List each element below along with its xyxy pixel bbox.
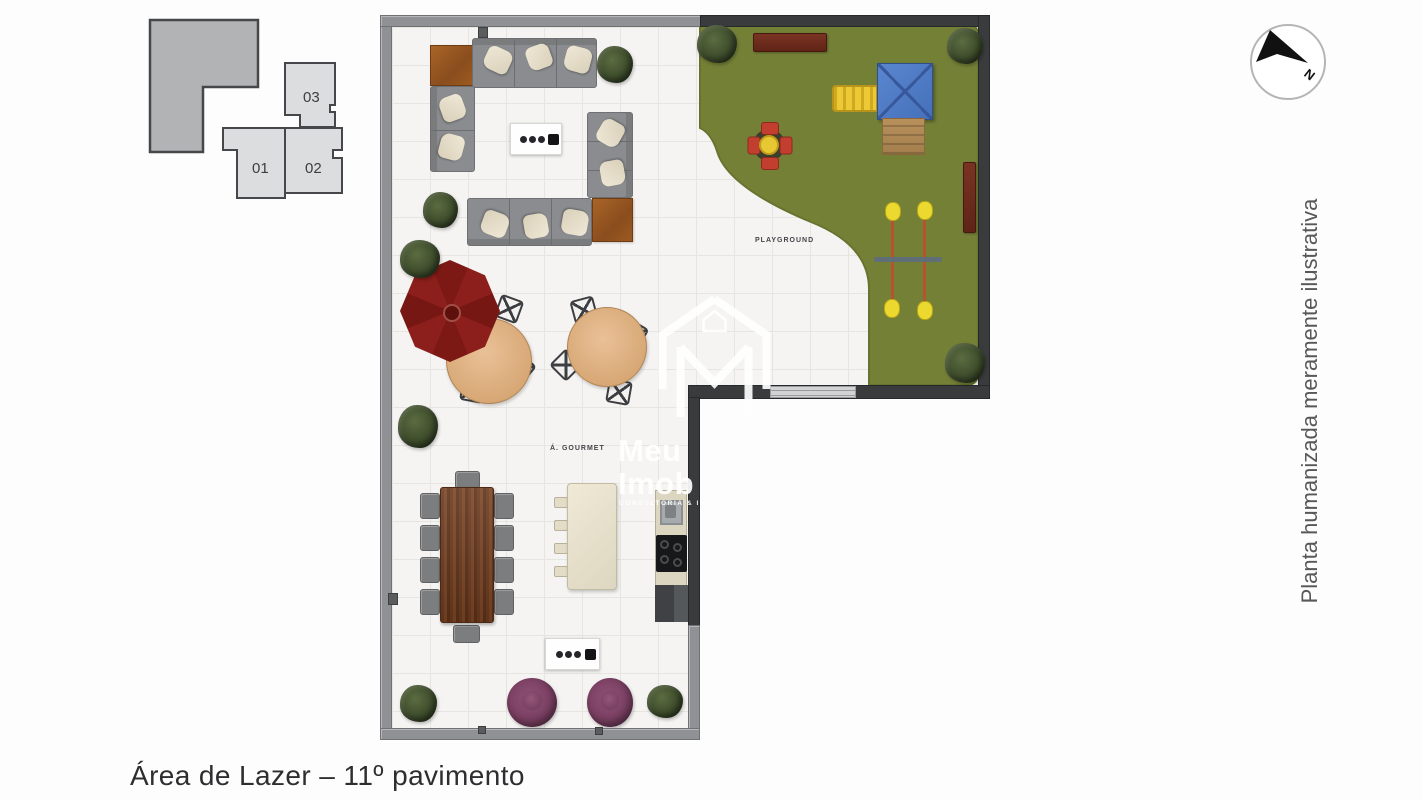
- sofa-seam: [431, 130, 474, 131]
- kitchen-sink: [660, 500, 683, 525]
- island-stool: [554, 566, 568, 577]
- swing-post: [917, 301, 933, 320]
- wall-fixture-top: [478, 27, 488, 38]
- cooktop: [656, 535, 687, 572]
- shrub-west-wall-2: [398, 405, 438, 448]
- shrub-gourmet-sw: [400, 685, 437, 722]
- dining-chair-right: [494, 557, 514, 583]
- side-table-wood-se: [592, 198, 633, 242]
- kids-picnic-table: [746, 122, 792, 168]
- wall-inner-gourmet-lower: [688, 625, 700, 740]
- wall-bottom-gourmet: [380, 728, 700, 740]
- wall-left: [380, 15, 392, 740]
- floor-plan: PLAYGROUND Á. GOURMET: [380, 15, 990, 740]
- dining-chair-left: [420, 557, 440, 583]
- round-table-2: [567, 307, 647, 387]
- shrub-lounge-w: [423, 192, 458, 228]
- dining-chair-left: [420, 493, 440, 519]
- shrub-west-wall-1: [400, 240, 440, 278]
- burner: [660, 555, 669, 564]
- sofa-right: [587, 112, 633, 198]
- island-stool: [554, 497, 568, 508]
- sofa-seam: [551, 199, 552, 245]
- swing-crossbar: [874, 257, 942, 262]
- playground-label: PLAYGROUND: [755, 237, 814, 244]
- wall-fixture-bottom-2: [595, 727, 603, 735]
- tray-box: [585, 649, 596, 660]
- key-plan: 03 01 02: [140, 15, 350, 205]
- sofa-pillow: [479, 208, 512, 239]
- sofa-seam: [514, 39, 515, 87]
- sofa-pillow: [437, 92, 468, 124]
- sofa-pillow: [524, 42, 555, 73]
- key-plan-unit-01-label: 01: [252, 160, 269, 177]
- kitchen-island: [567, 483, 617, 590]
- swing-post: [884, 299, 900, 318]
- page-title: Área de Lazer – 11º pavimento: [130, 760, 525, 792]
- swing-post: [885, 202, 901, 221]
- playground-bench-right: [963, 162, 976, 233]
- kids-table-seat: [761, 157, 779, 170]
- tree-playground-nw: [697, 25, 737, 63]
- wall-inner-gourmet: [688, 397, 700, 627]
- dining-chair-left: [420, 525, 440, 551]
- sofa-pillow: [599, 159, 627, 188]
- tree-playground-ne: [947, 28, 983, 64]
- sofa-left: [430, 86, 475, 172]
- wall-fixture-bottom: [478, 726, 486, 734]
- tray-item: [538, 136, 545, 143]
- burner: [673, 558, 682, 567]
- tray-item: [529, 136, 536, 143]
- compass-circle: [1251, 25, 1325, 99]
- playground-bench-top: [753, 33, 827, 52]
- island-stool: [554, 543, 568, 554]
- tray-item: [574, 651, 581, 658]
- coffee-table-gourmet: [545, 638, 600, 670]
- disclaimer-vertical-text: Planta humanizada meramente ilustrativa: [1297, 181, 1323, 621]
- shrub-lounge-ne: [597, 46, 633, 83]
- side-table-wood-nw: [430, 45, 473, 86]
- sofa-pillow: [560, 208, 590, 237]
- dining-chair-left: [420, 589, 440, 615]
- burner: [673, 543, 682, 552]
- kitchen-cabinet: [655, 585, 690, 622]
- dining-table: [440, 487, 494, 623]
- playground-sliding-door: [770, 386, 856, 398]
- sofa-pillow: [594, 116, 627, 150]
- coffee-table-lounge: [510, 123, 562, 155]
- burner: [660, 540, 669, 549]
- tray-item: [556, 651, 563, 658]
- dining-chair-right: [494, 493, 514, 519]
- wall-fixture-left: [388, 593, 398, 605]
- swing-set: [874, 200, 942, 322]
- tray-box: [548, 134, 559, 145]
- wall-right-playground: [978, 15, 990, 399]
- sofa-pillow: [437, 132, 467, 162]
- playhouse-slide: [832, 85, 878, 112]
- sofa-seam: [556, 39, 557, 87]
- tray-item: [520, 136, 527, 143]
- gourmet-label: Á. GOURMET: [550, 445, 605, 452]
- pouf-right: [587, 678, 633, 727]
- wall-top-playground: [700, 15, 990, 27]
- tree-playground-se: [945, 343, 985, 383]
- sofa-pillow: [522, 212, 550, 240]
- kids-table-seat: [761, 122, 779, 135]
- sofa-pillow: [562, 44, 594, 75]
- north-compass: N: [1248, 22, 1328, 102]
- playhouse-roof: [877, 63, 933, 120]
- dining-chair-head-bottom: [453, 625, 480, 643]
- shrub-gourmet-se: [647, 685, 683, 718]
- dining-chair-right: [494, 589, 514, 615]
- playhouse-deck: [882, 118, 925, 155]
- sofa-bottom: [467, 198, 592, 246]
- kids-table-seat: [780, 137, 793, 155]
- key-plan-unit-03-label: 03: [303, 89, 320, 106]
- island-stool: [554, 520, 568, 531]
- sofa-top: [472, 38, 597, 88]
- dining-chair-right: [494, 525, 514, 551]
- kids-table-top: [759, 135, 779, 155]
- wall-top-lounge: [380, 15, 702, 27]
- sofa-pillow: [481, 44, 515, 77]
- pouf-left: [507, 678, 557, 727]
- swing-post: [917, 201, 933, 220]
- key-plan-unit-02-label: 02: [305, 160, 322, 177]
- umbrella-pole: [443, 304, 461, 322]
- tray-item: [565, 651, 572, 658]
